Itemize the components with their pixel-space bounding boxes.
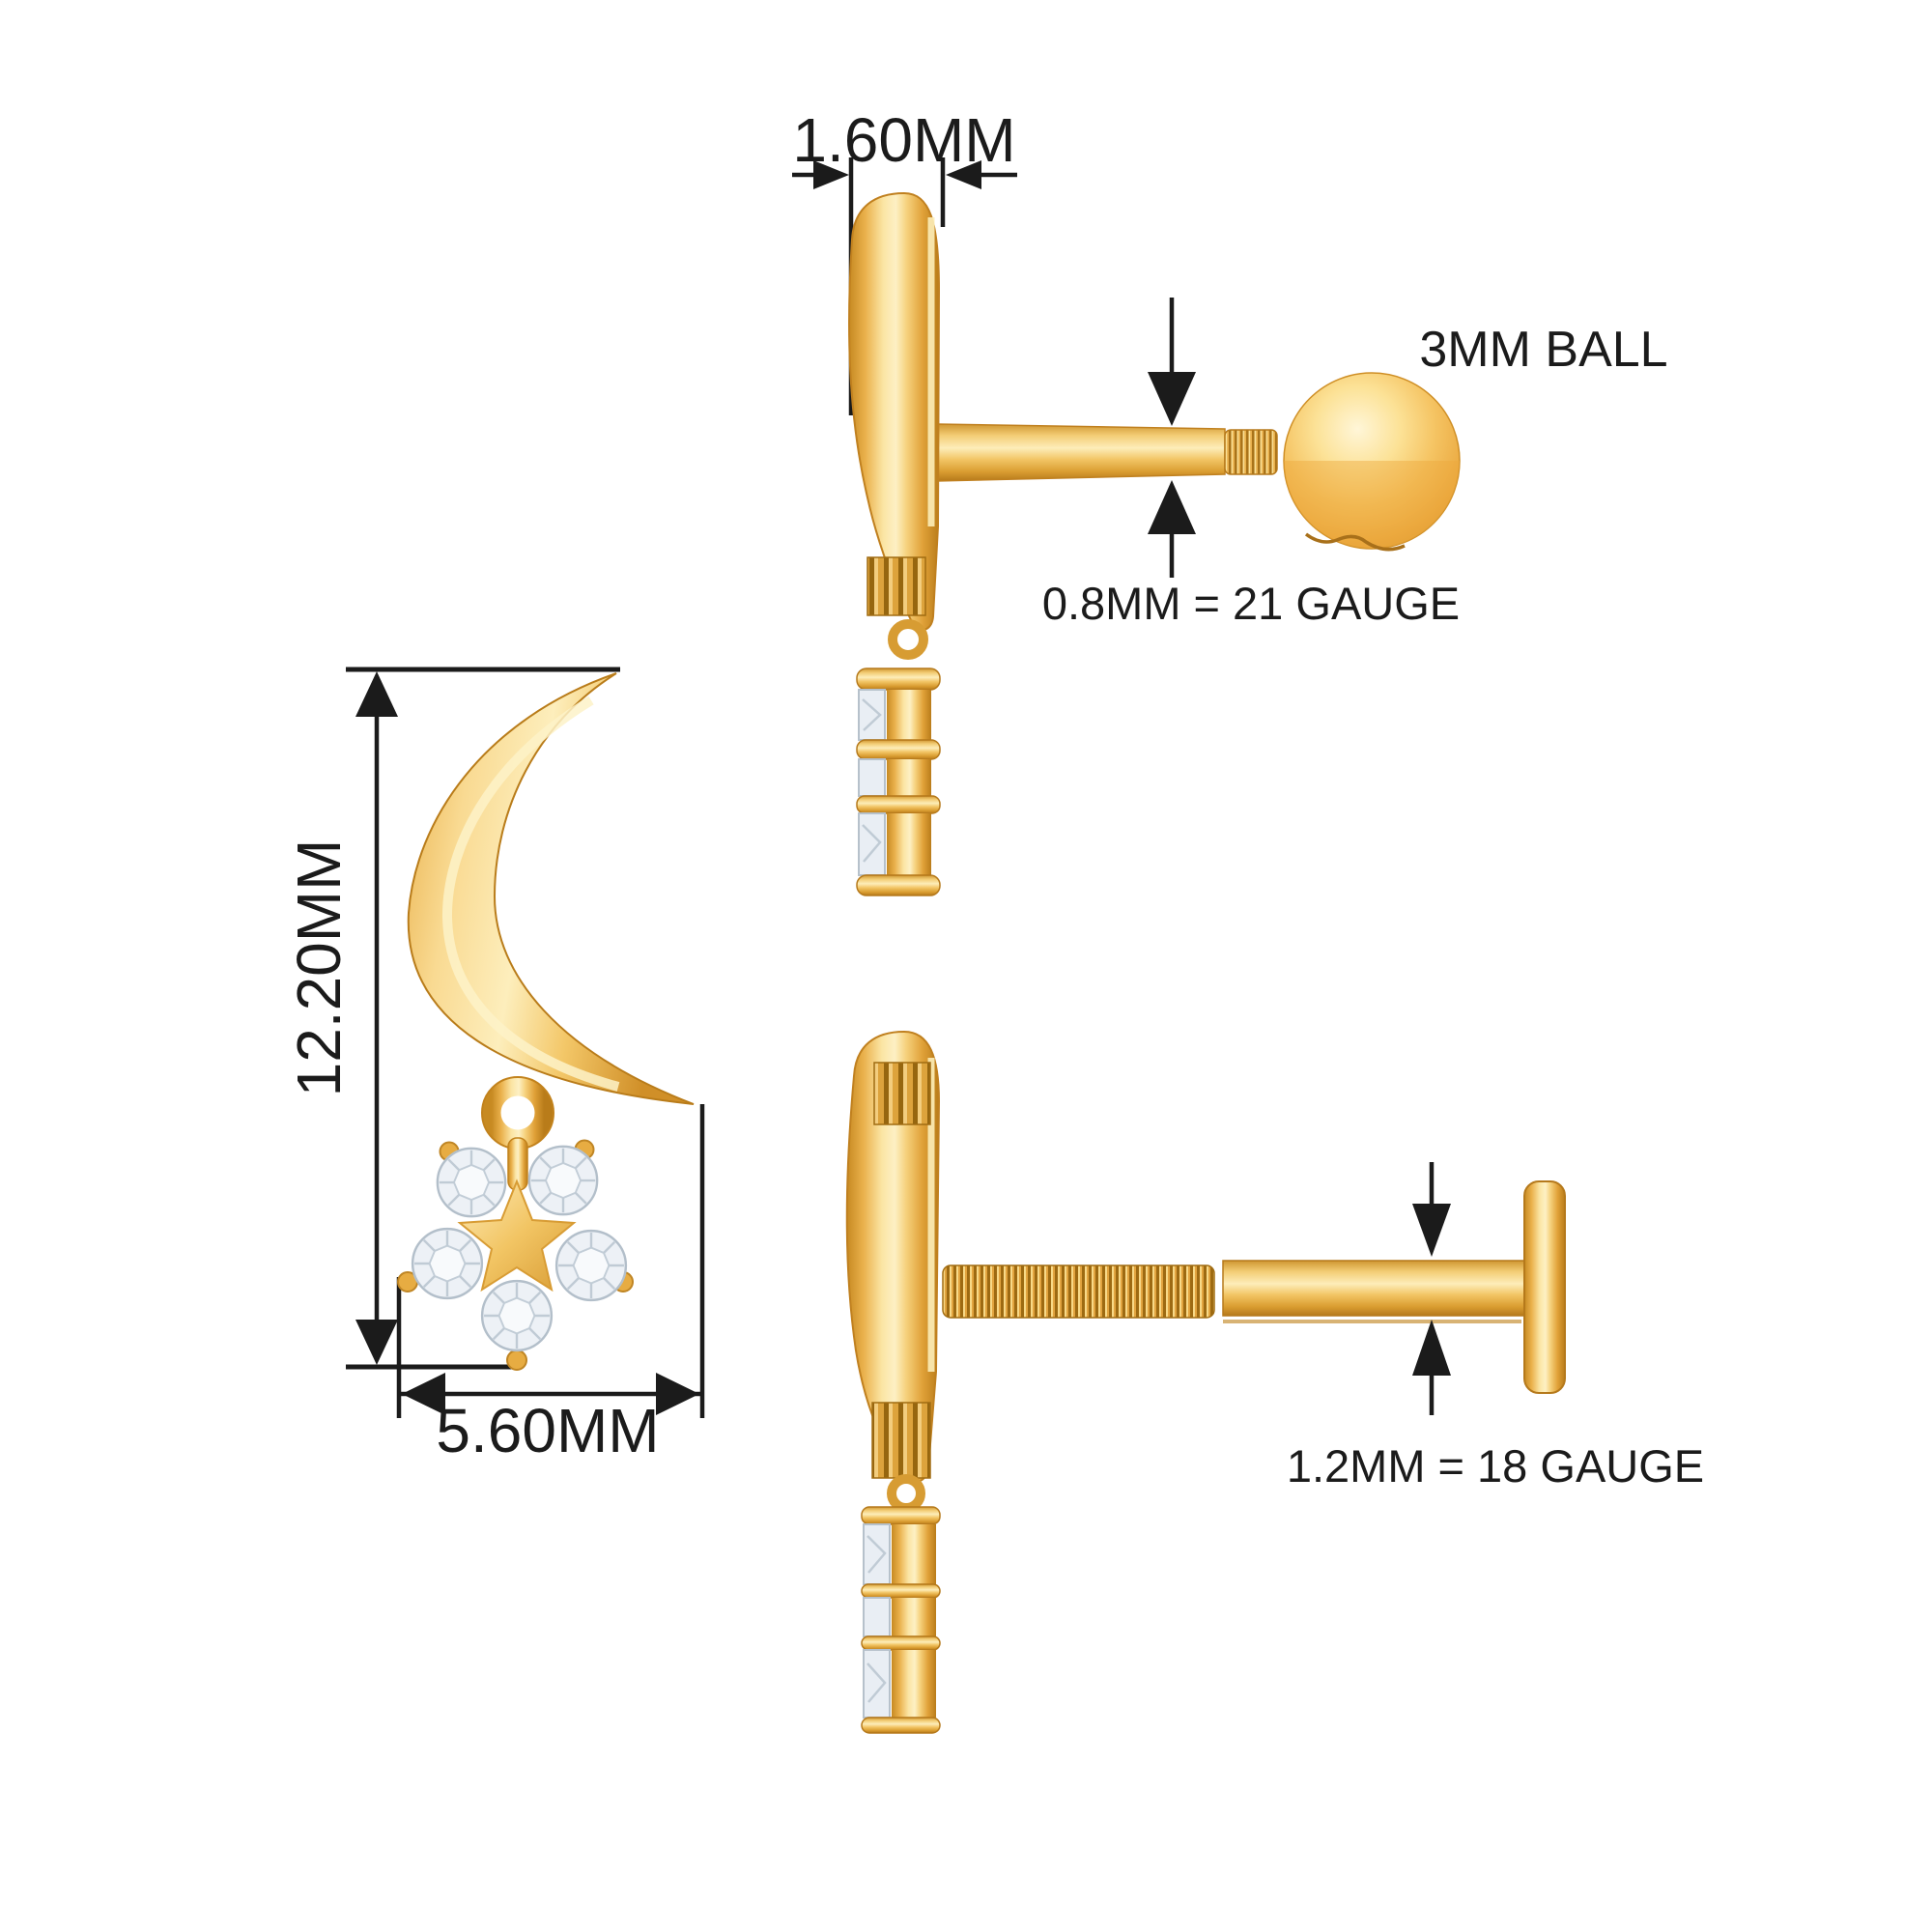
dangle-bar [862,1507,940,1524]
dangle-gold [887,759,931,796]
flat-disc-back [1524,1181,1565,1393]
dangle-bar [857,668,940,690]
dangle-side [862,1507,940,1733]
side-view-bottom [847,1032,1565,1733]
arrow-up-icon [1148,480,1196,534]
diamond-top-left [438,1149,505,1216]
front-view [346,669,702,1418]
dangle-gold [887,813,931,875]
diamond-top-right [529,1147,597,1214]
diamond-left [412,1229,482,1298]
diamond-edge [859,759,885,796]
arrow-right-icon [656,1373,699,1415]
dangle-gold [892,1524,936,1584]
diagram-canvas: 1.60MM 12.20MM 5.60MM 3MM BALL 0.8MM = 2… [0,0,1932,1932]
dangle-bar [857,740,940,759]
diamond-right [556,1231,626,1300]
bail-ring [492,1087,544,1139]
bail-ring-side [892,1479,921,1508]
post-gauge-label: 0.8MM = 21 GAUGE [1042,578,1460,629]
arrow-down-icon [1148,372,1196,426]
diamond-edge [859,813,885,875]
dangle-gold [892,1598,936,1636]
post-threads [1225,430,1277,474]
dangle-gold [892,1650,936,1718]
dangle-bar [857,875,940,895]
dangle-side [857,668,940,895]
dangle-bar [857,796,940,813]
bail-ring-side [893,624,923,655]
diamond-edge [864,1598,890,1636]
diamond-edge [864,1650,890,1718]
diamond-edge [864,1524,890,1584]
arrow-down-icon [355,1320,398,1365]
dangle-gold [887,690,931,740]
thickness-label: 1.60MM [792,105,1015,175]
jewelry-dimension-diagram: 1.60MM 12.20MM 5.60MM 3MM BALL 0.8MM = 2… [0,0,1932,1932]
arrow-up-icon [355,671,398,717]
dangle-bar [862,1636,940,1650]
ball-label: 3MM BALL [1419,322,1667,378]
arrow-up-icon [1412,1320,1451,1376]
diamond-bottom [482,1281,552,1350]
dangle-bar [862,1718,940,1733]
threaded-rod [943,1265,1214,1318]
cluster-basket-side [874,1063,930,1124]
arrow-down-icon [1412,1204,1451,1257]
cluster-basket-side [867,557,925,615]
height-label: 12.20MM [284,839,354,1097]
rod-gauge-label: 1.2MM = 18 GAUGE [1287,1440,1704,1492]
earring-post [937,424,1225,481]
dangle-bar [862,1584,940,1598]
side-view-top [792,157,1460,895]
cluster-basket-side [872,1403,930,1478]
prong-ball [507,1350,526,1370]
width-label: 5.60MM [436,1396,659,1465]
smooth-rod [1223,1261,1536,1316]
